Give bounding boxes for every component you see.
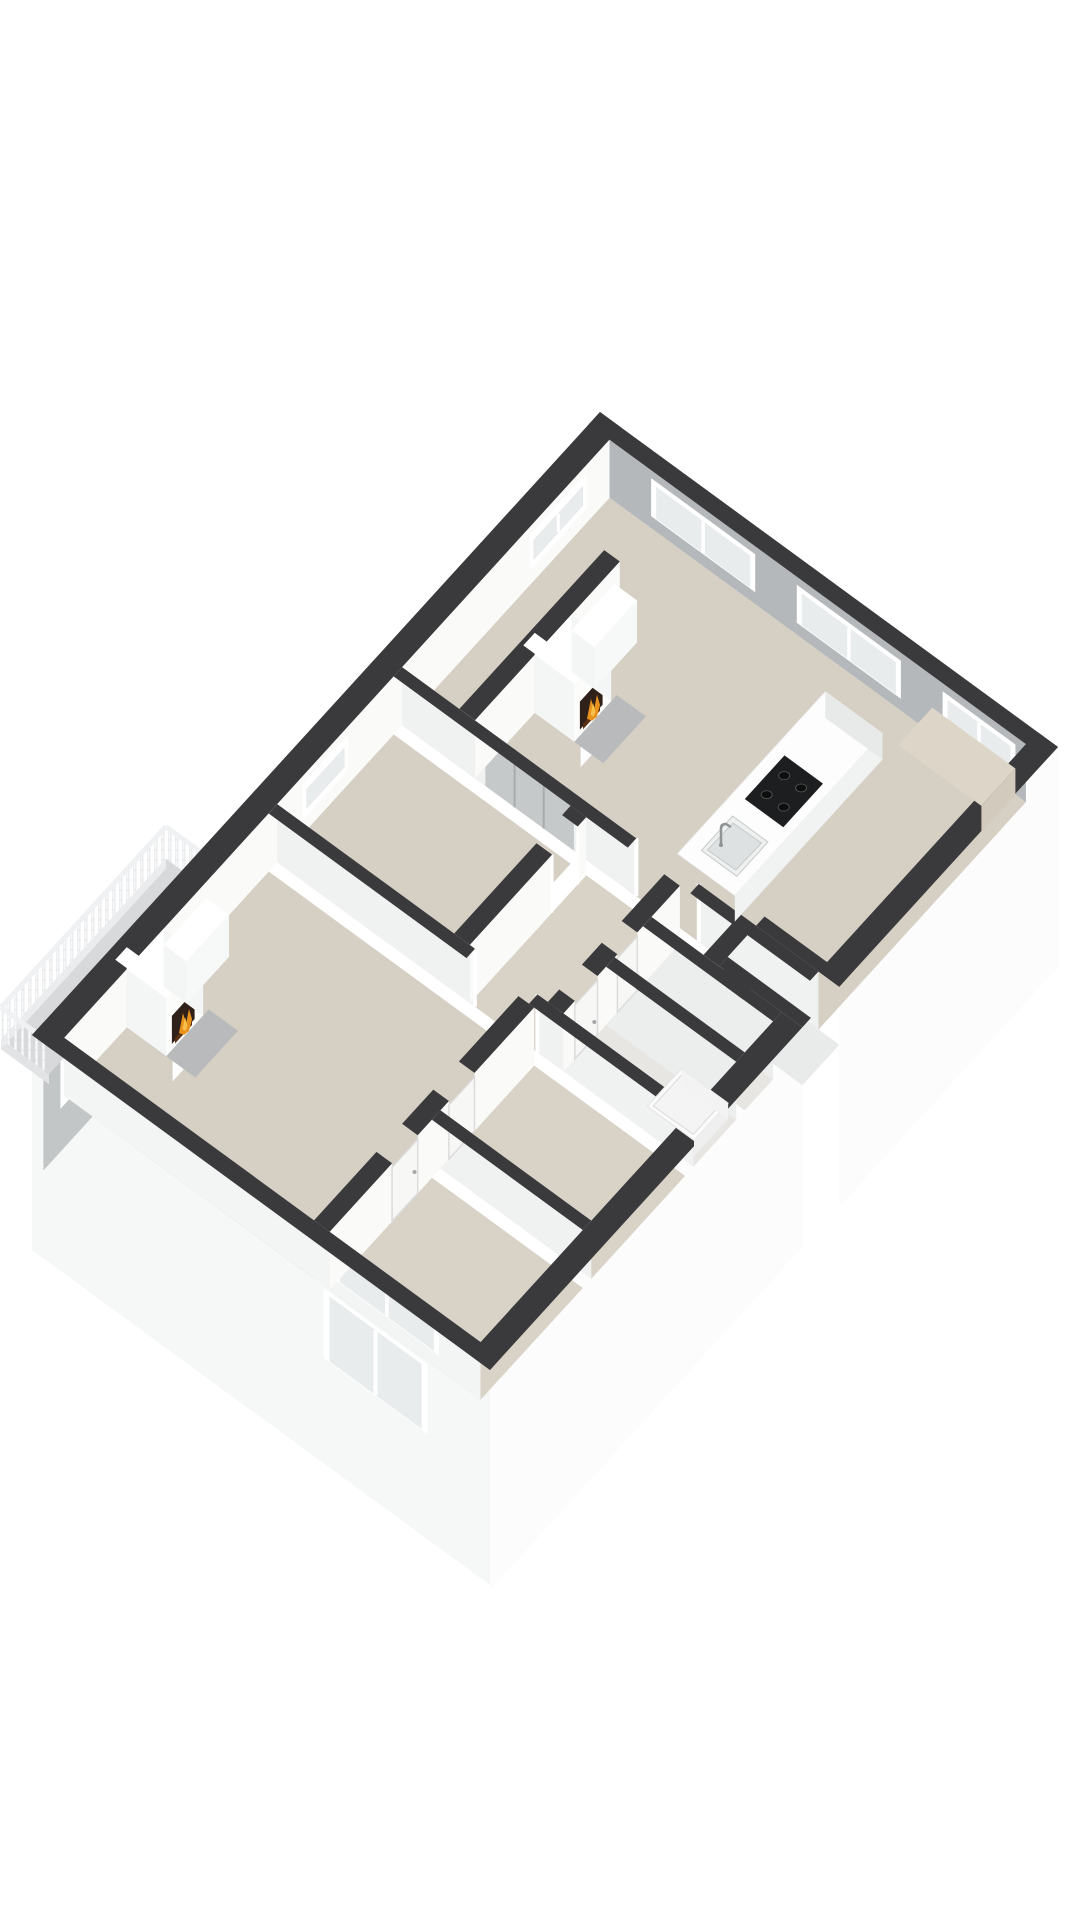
- floor-plan-3d-render: [0, 0, 1080, 1920]
- faucet-base: [719, 843, 723, 847]
- door-handle: [413, 1170, 417, 1174]
- burner: [779, 772, 790, 780]
- burner: [796, 784, 807, 792]
- door-handle: [592, 1020, 596, 1024]
- burner: [778, 803, 789, 811]
- burner: [761, 791, 772, 799]
- floor-plan-canvas: [0, 0, 1080, 1920]
